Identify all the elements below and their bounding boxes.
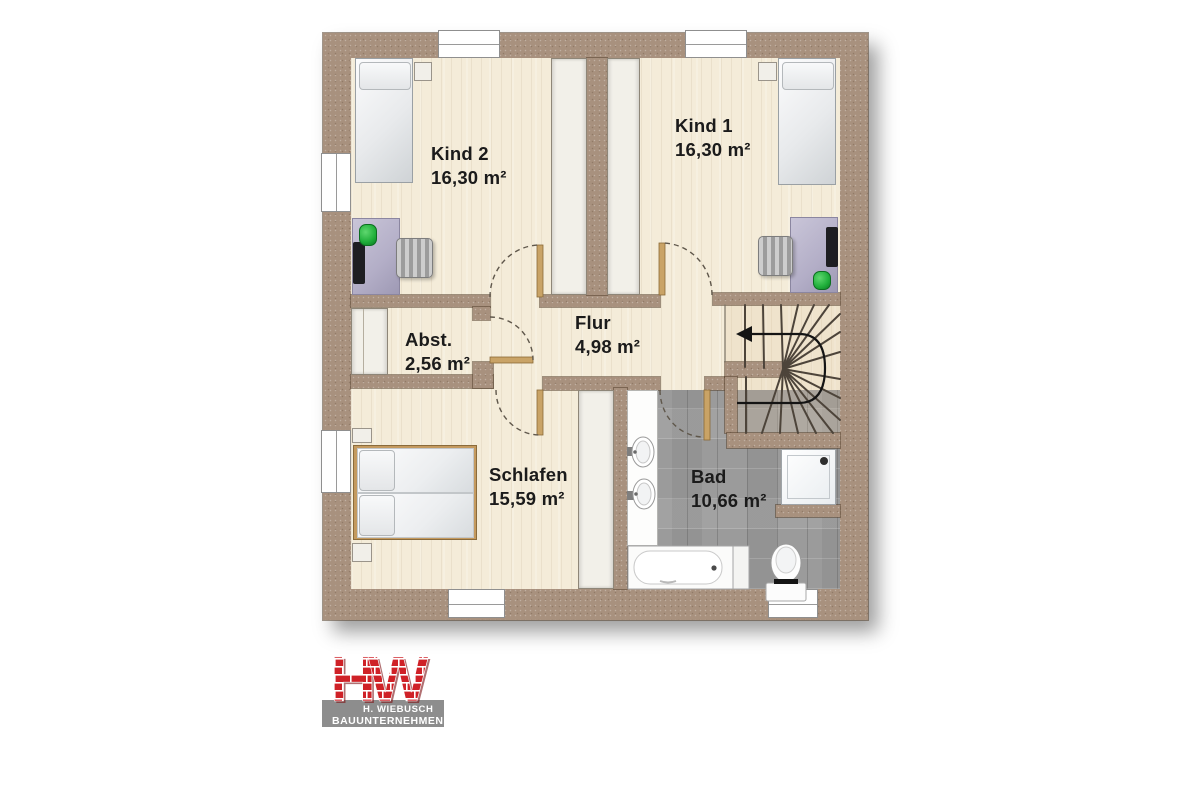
washbasins bbox=[627, 437, 655, 509]
door-schlafen bbox=[537, 390, 543, 435]
room-label-bad: Bad 10,66 m² bbox=[691, 465, 767, 513]
room-name: Kind 1 bbox=[675, 114, 751, 138]
winder-staircase bbox=[725, 305, 840, 433]
bathtub bbox=[628, 546, 749, 589]
room-label-schlafen: Schlafen 15,59 m² bbox=[489, 463, 568, 511]
room-name: Bad bbox=[691, 465, 767, 489]
floor-plan-page: Kind 2 16,30 m² Kind 1 16,30 m² Abst. 2,… bbox=[0, 0, 1200, 800]
company-logo: H W H W H. WIEBUSCH BAUUNTERNEHMEN bbox=[322, 650, 452, 730]
room-area: 16,30 m² bbox=[675, 138, 751, 162]
room-label-abstellraum: Abst. 2,56 m² bbox=[405, 328, 470, 376]
plan-overlay bbox=[0, 0, 1200, 800]
room-label-kind2: Kind 2 16,30 m² bbox=[431, 142, 507, 190]
room-name: Kind 2 bbox=[431, 142, 507, 166]
room-area: 16,30 m² bbox=[431, 166, 507, 190]
room-label-flur: Flur 4,98 m² bbox=[575, 311, 640, 359]
logo-company-name: H. WIEBUSCH bbox=[363, 704, 433, 715]
logo-company-type: BAUUNTERNEHMEN bbox=[332, 715, 443, 727]
door-kind2 bbox=[537, 245, 543, 297]
stair-direction-arrow bbox=[736, 326, 825, 403]
room-label-kind1: Kind 1 16,30 m² bbox=[675, 114, 751, 162]
toilet bbox=[766, 544, 806, 601]
room-name: Schlafen bbox=[489, 463, 568, 487]
room-name: Abst. bbox=[405, 328, 470, 352]
door-kind1 bbox=[659, 243, 665, 295]
room-area: 15,59 m² bbox=[489, 487, 568, 511]
room-area: 4,98 m² bbox=[575, 335, 640, 359]
door-bad bbox=[704, 390, 710, 440]
door-abstellraum bbox=[490, 357, 533, 363]
room-area: 2,56 m² bbox=[405, 352, 470, 376]
room-name: Flur bbox=[575, 311, 640, 335]
room-area: 10,66 m² bbox=[691, 489, 767, 513]
